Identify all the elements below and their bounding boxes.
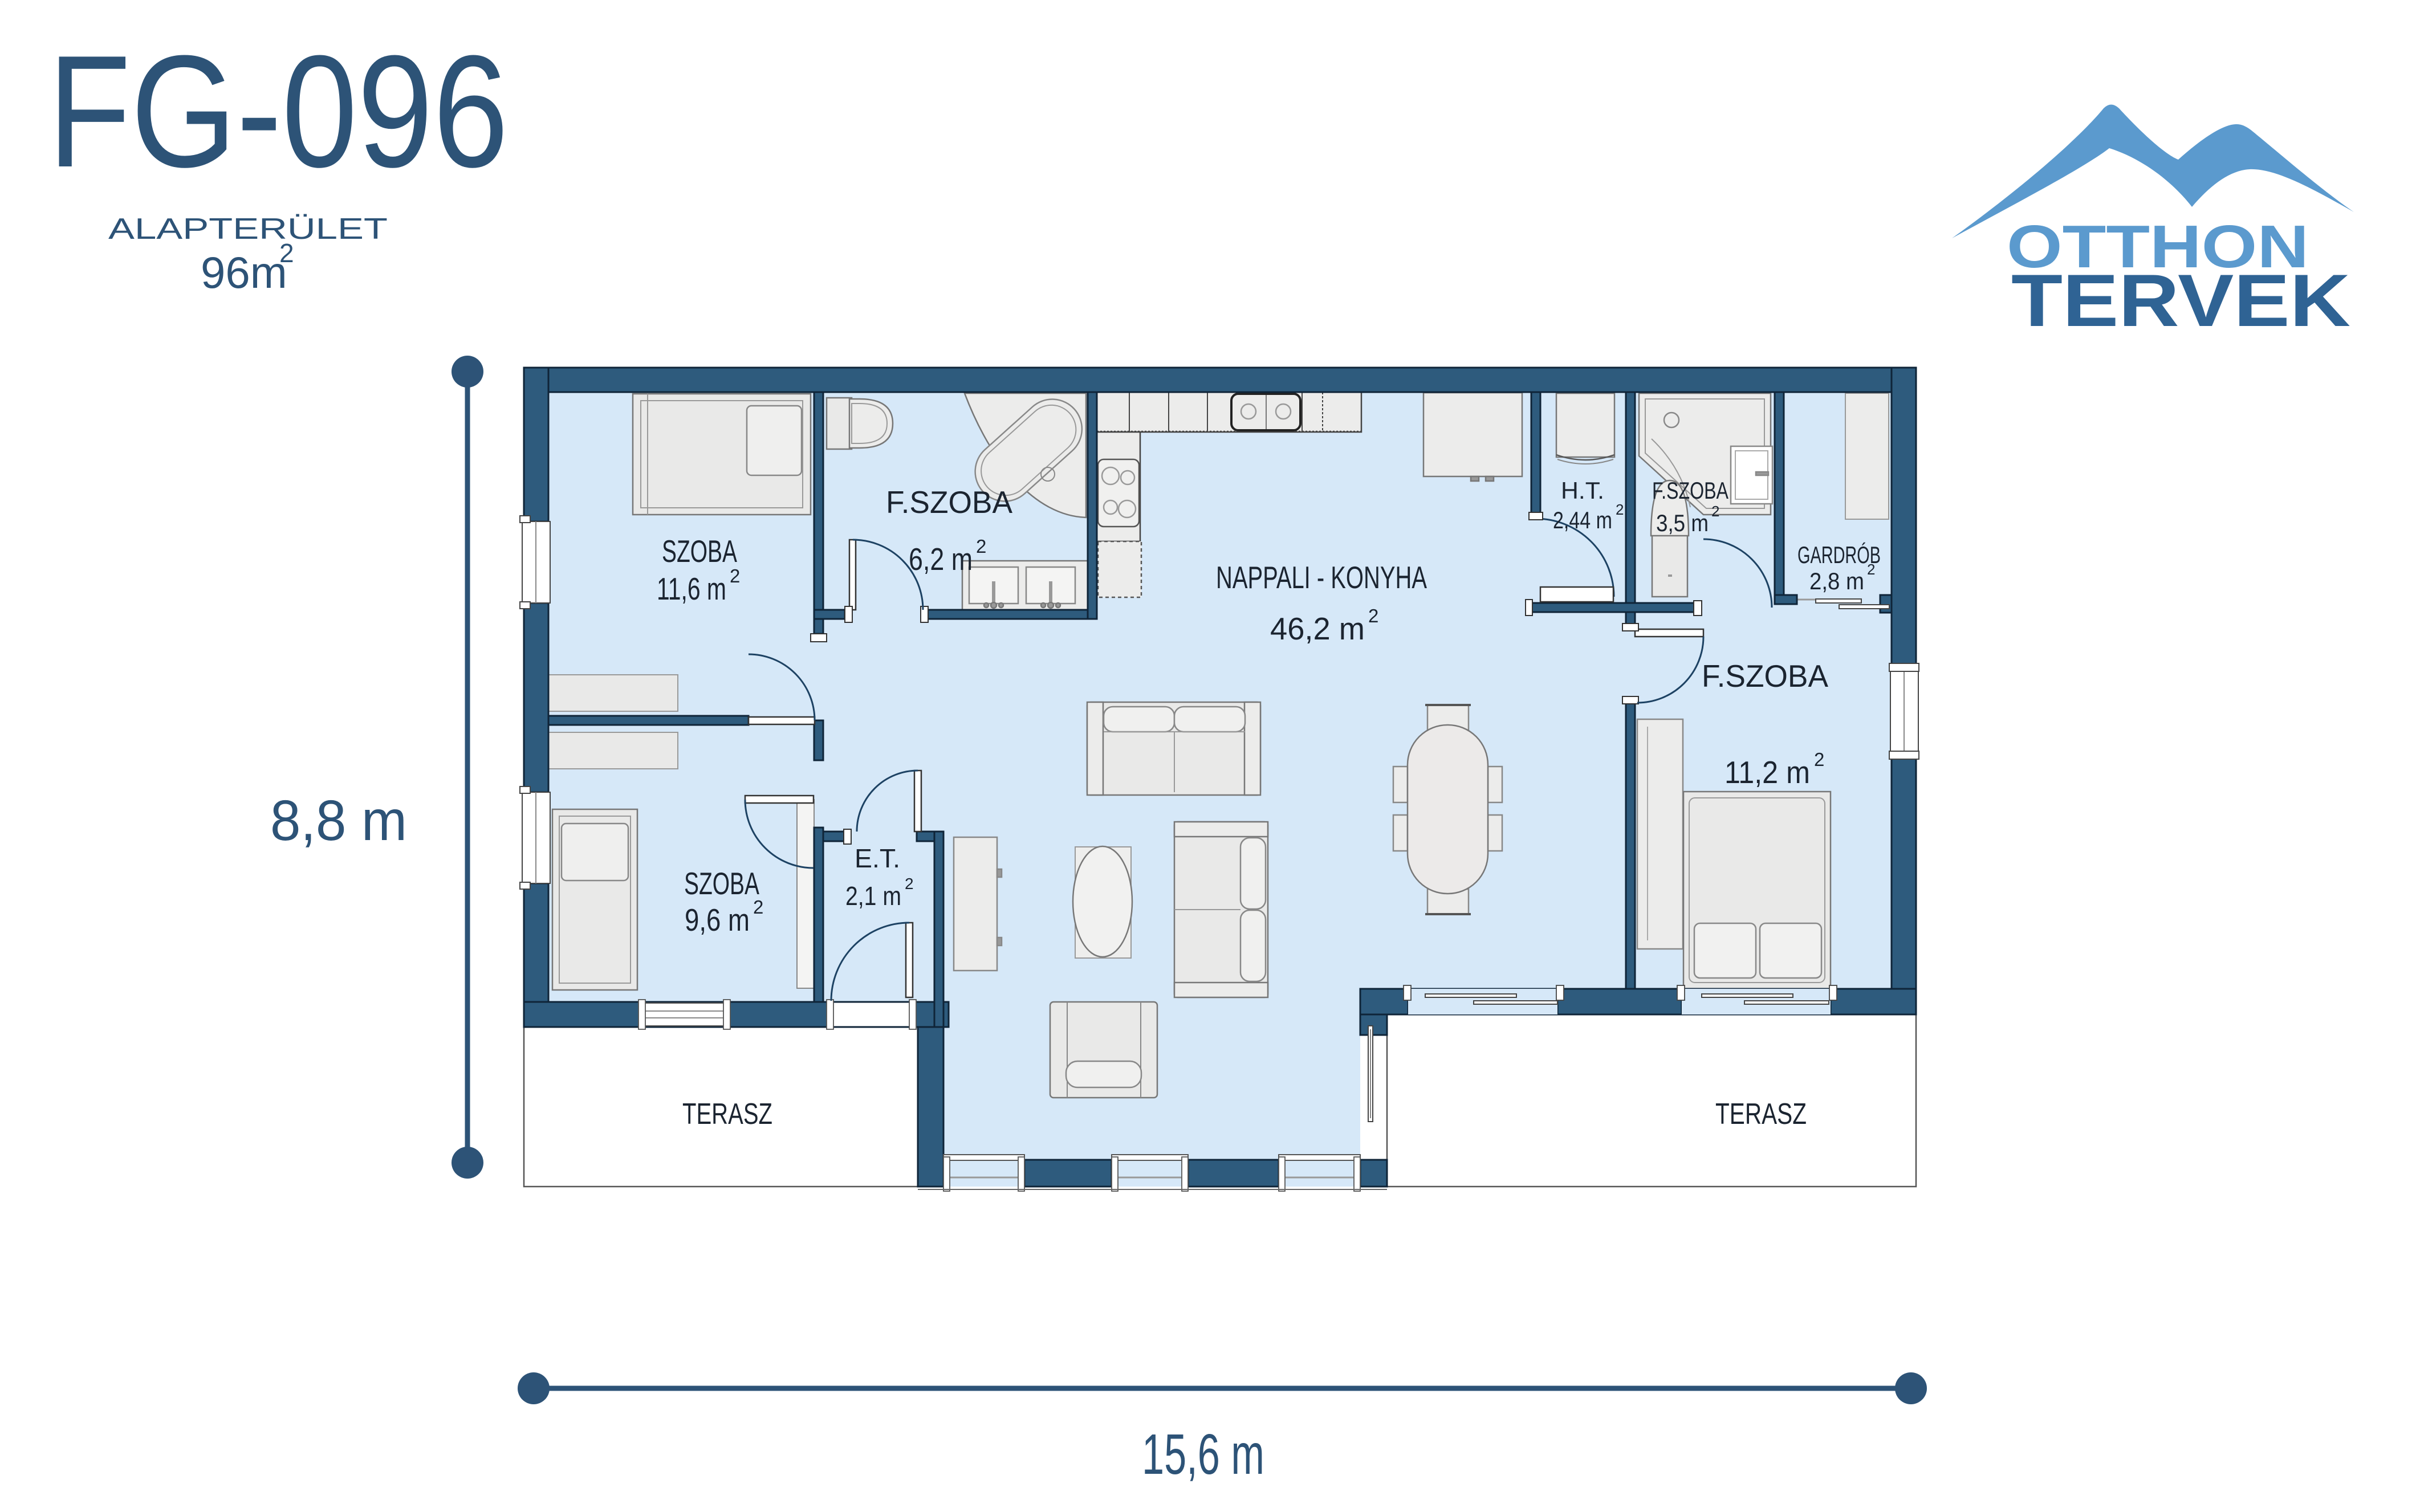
svg-text:96m: 96m xyxy=(201,247,287,297)
svg-text:SZOBA: SZOBA xyxy=(684,866,759,901)
svg-text:FG-096: FG-096 xyxy=(48,23,509,201)
svg-text:2: 2 xyxy=(905,875,914,892)
svg-text:F.SZOBA: F.SZOBA xyxy=(1702,658,1828,694)
svg-text:2: 2 xyxy=(1616,501,1624,518)
svg-text:15,6 m: 15,6 m xyxy=(1142,1423,1264,1486)
svg-text:2: 2 xyxy=(1814,749,1824,770)
svg-text:2: 2 xyxy=(976,536,986,557)
svg-text:2: 2 xyxy=(1711,503,1719,520)
svg-text:3,5 m: 3,5 m xyxy=(1656,510,1709,536)
svg-text:NAPPALI - KONYHA: NAPPALI - KONYHA xyxy=(1216,560,1427,595)
svg-text:11,6 m: 11,6 m xyxy=(657,571,726,606)
svg-text:2: 2 xyxy=(1867,561,1875,578)
svg-text:E.T.: E.T. xyxy=(855,843,900,873)
svg-text:H.T.: H.T. xyxy=(1561,477,1604,504)
svg-text:F.SZOBA: F.SZOBA xyxy=(1652,477,1728,504)
svg-text:2,1 m: 2,1 m xyxy=(845,881,901,911)
svg-text:TERVEK: TERVEK xyxy=(2011,259,2350,342)
svg-text:2,8 m: 2,8 m xyxy=(1809,568,1864,594)
svg-text:ALAPTERÜLET: ALAPTERÜLET xyxy=(108,213,388,246)
svg-text:2: 2 xyxy=(279,238,294,268)
svg-text:2: 2 xyxy=(730,565,740,586)
svg-text:11,2 m: 11,2 m xyxy=(1724,755,1810,790)
svg-text:SZOBA: SZOBA xyxy=(662,533,737,569)
svg-text:6,2 m: 6,2 m xyxy=(909,541,973,577)
svg-text:2: 2 xyxy=(1368,605,1378,626)
svg-text:8,8 m: 8,8 m xyxy=(270,789,407,853)
svg-text:9,6 m: 9,6 m xyxy=(685,902,750,938)
svg-text:TERASZ: TERASZ xyxy=(682,1098,772,1131)
svg-text:TERASZ: TERASZ xyxy=(1715,1098,1807,1131)
svg-text:2: 2 xyxy=(753,896,763,918)
svg-text:46,2 m: 46,2 m xyxy=(1270,611,1365,646)
svg-text:2,44 m: 2,44 m xyxy=(1553,507,1612,533)
svg-text:F.SZOBA: F.SZOBA xyxy=(886,484,1012,520)
